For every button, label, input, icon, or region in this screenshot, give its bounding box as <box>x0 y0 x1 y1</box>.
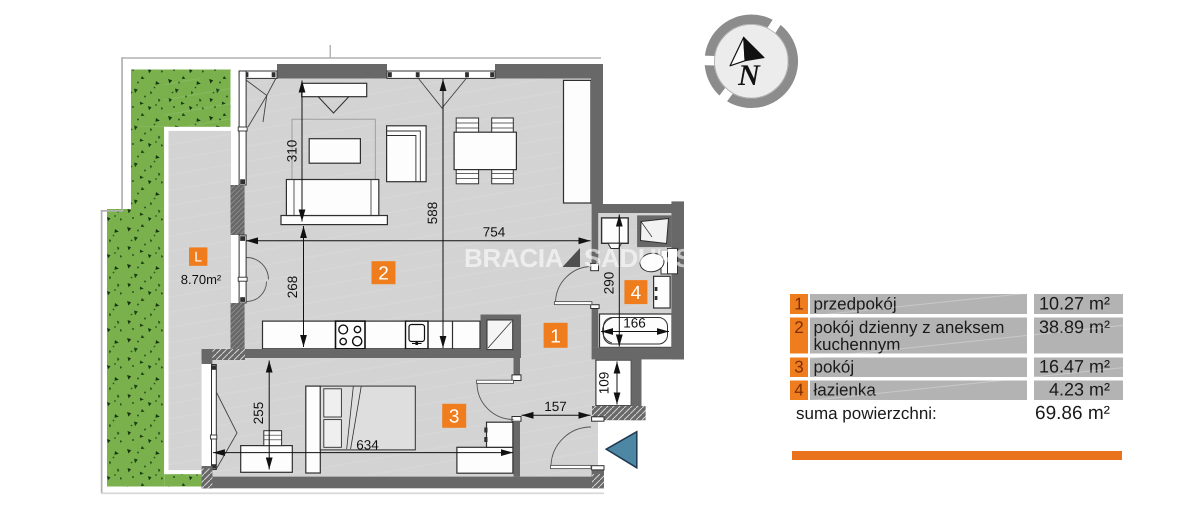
svg-text:BRACIA: BRACIA <box>464 243 564 273</box>
svg-text:754: 754 <box>483 225 506 240</box>
svg-text:268: 268 <box>285 276 300 299</box>
svg-text:310: 310 <box>285 140 300 163</box>
svg-text:4: 4 <box>794 381 803 400</box>
svg-text:N: N <box>737 59 761 92</box>
svg-text:634: 634 <box>356 438 379 453</box>
svg-text:166: 166 <box>623 316 646 331</box>
svg-text:SADURSCY: SADURSCY <box>584 243 728 273</box>
svg-text:588: 588 <box>425 202 440 225</box>
svg-text:4: 4 <box>631 283 642 304</box>
svg-text:3: 3 <box>449 407 460 428</box>
svg-text:2: 2 <box>378 264 389 285</box>
svg-text:255: 255 <box>251 402 266 425</box>
svg-text:157: 157 <box>544 399 567 414</box>
svg-text:1: 1 <box>550 327 561 348</box>
svg-text:290: 290 <box>602 272 617 295</box>
svg-text:suma powierzchni:: suma powierzchni: <box>796 404 937 423</box>
svg-text:2: 2 <box>794 318 803 337</box>
svg-text:3: 3 <box>794 358 803 377</box>
svg-text:1: 1 <box>794 295 803 314</box>
svg-text:L: L <box>194 249 202 265</box>
svg-text:8.70m²: 8.70m² <box>181 272 222 287</box>
svg-text:69.86 m²: 69.86 m² <box>1035 403 1110 424</box>
svg-text:109: 109 <box>597 372 612 395</box>
